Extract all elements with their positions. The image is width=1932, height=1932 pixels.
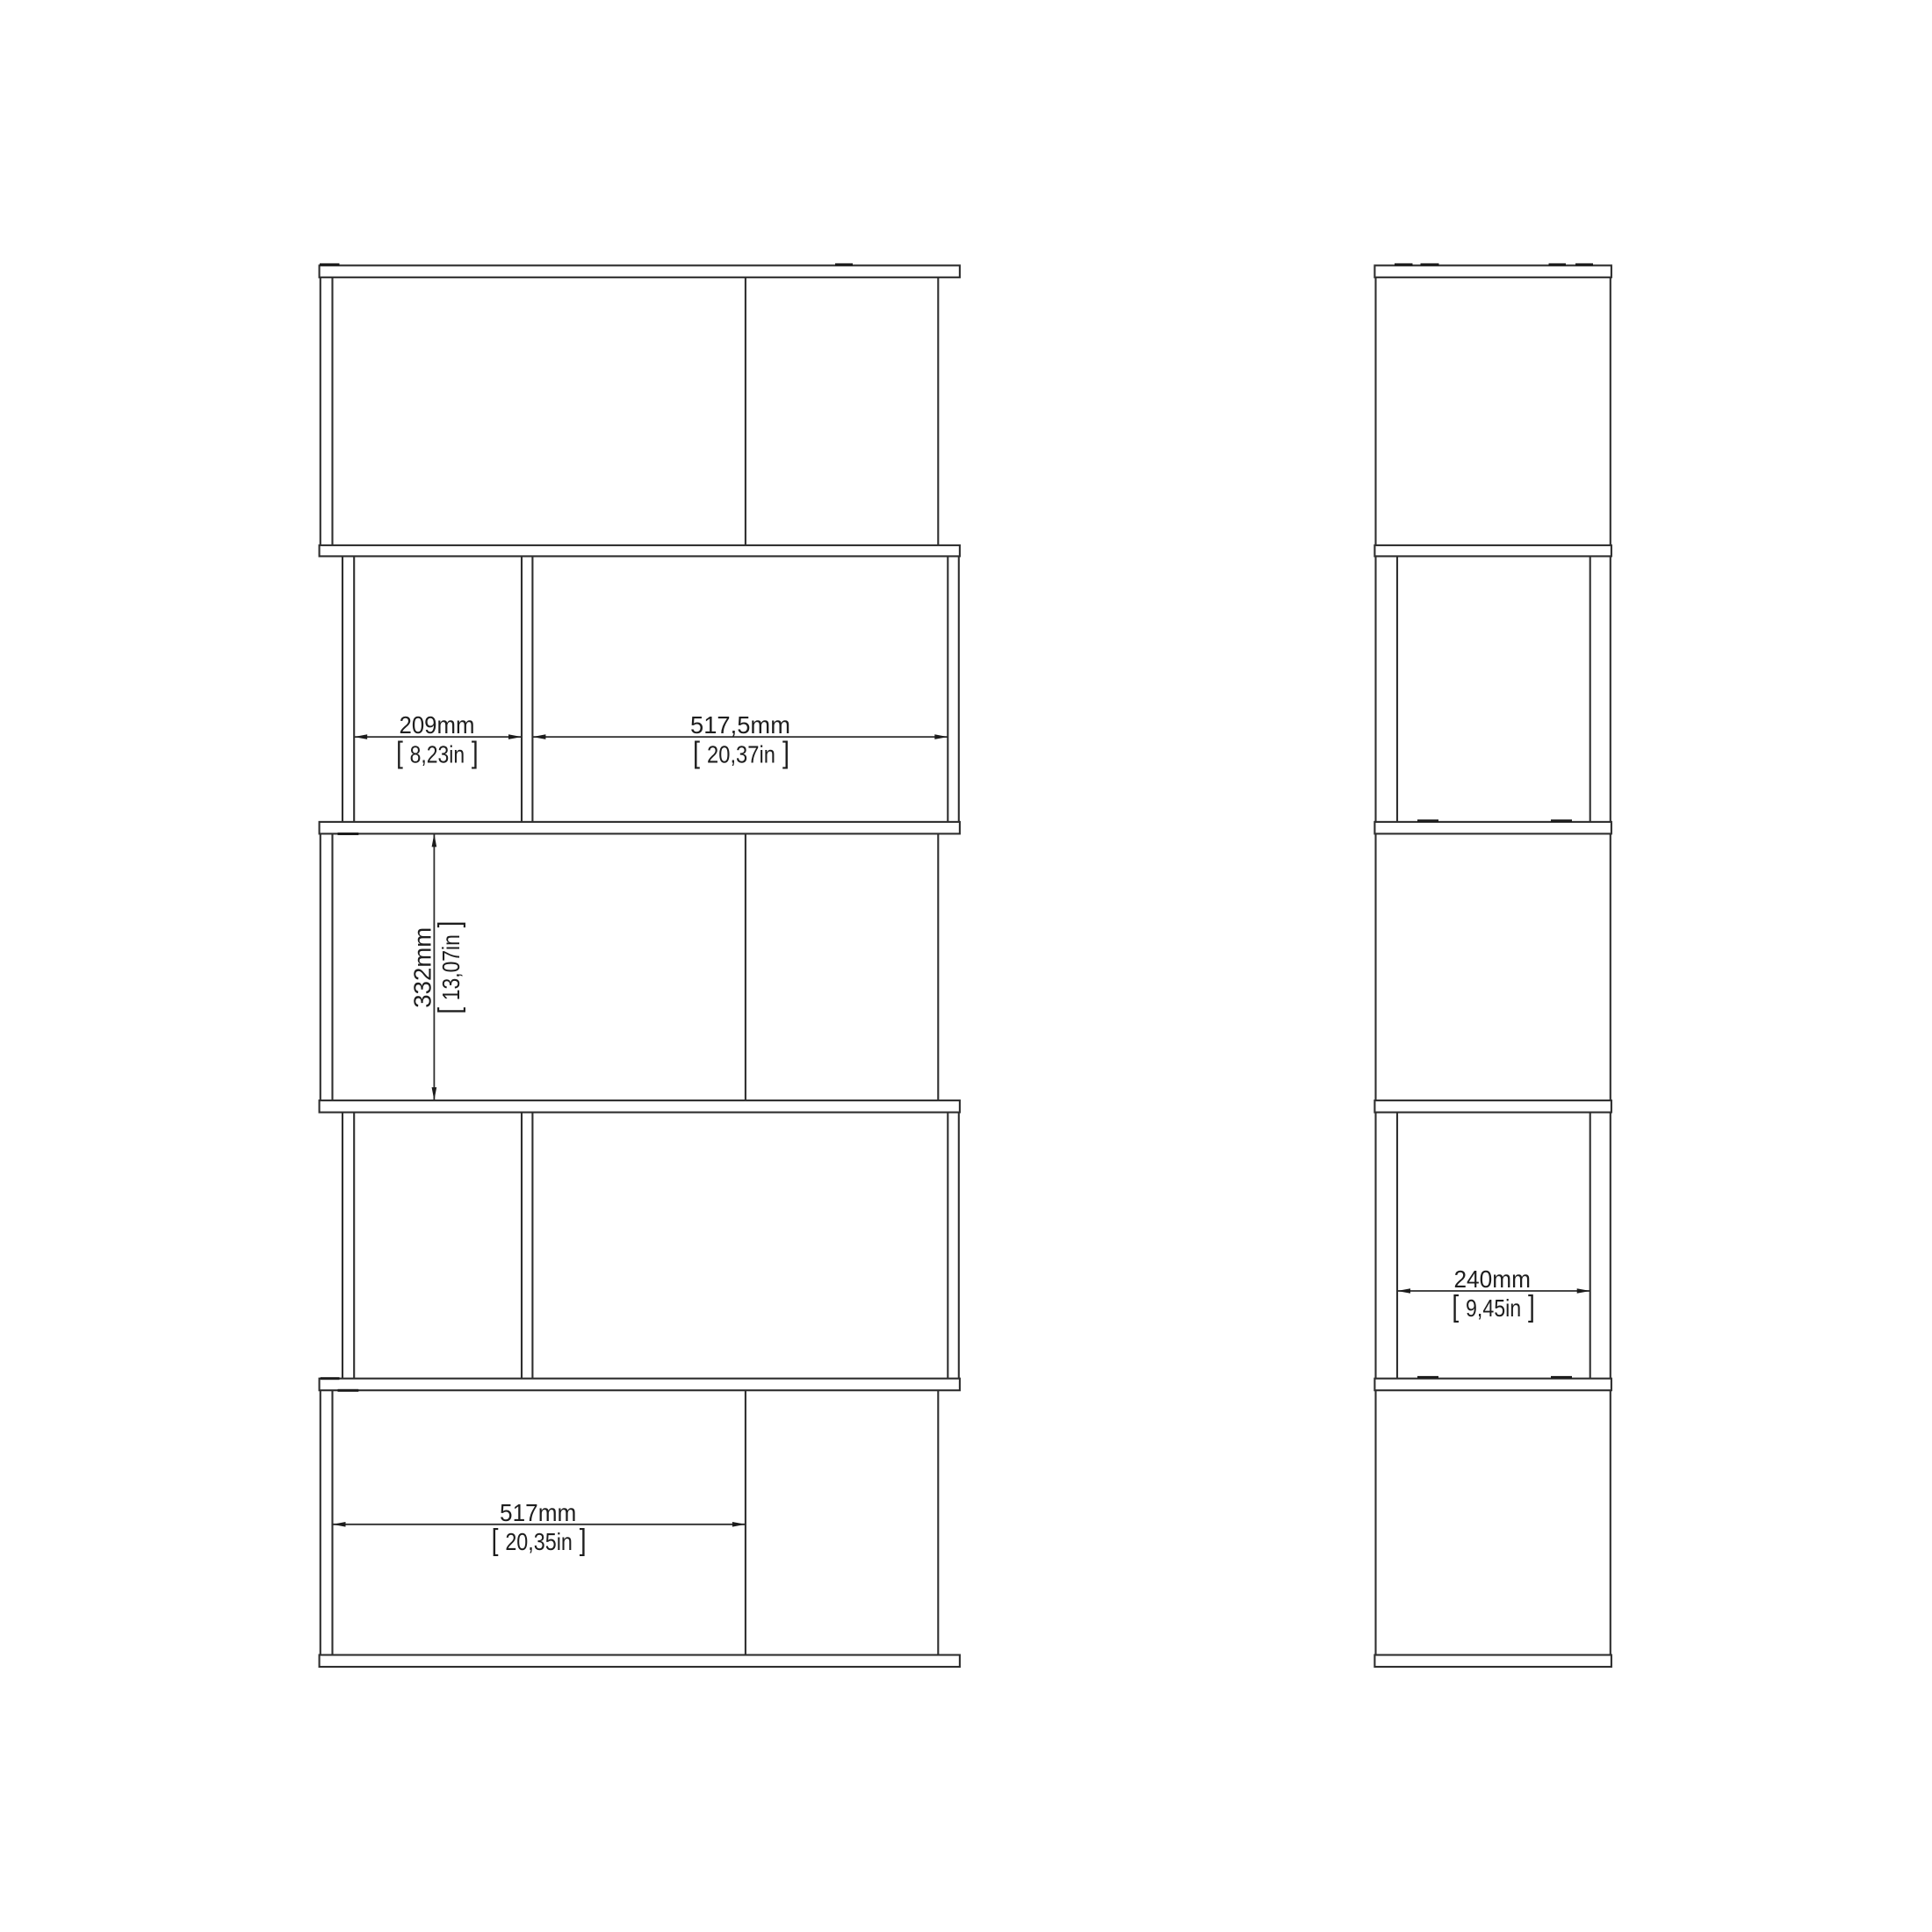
svg-text:517mm: 517mm (500, 1499, 576, 1526)
svg-text:[ 9,45in ]: [ 9,45in ] (1452, 1290, 1535, 1323)
svg-text:[ 8,23in ]: [ 8,23in ] (396, 736, 479, 769)
svg-text:[ 20,35in ]: [ 20,35in ] (492, 1524, 587, 1557)
svg-text:209mm: 209mm (400, 711, 475, 739)
svg-text:240mm: 240mm (1453, 1265, 1531, 1293)
svg-text:[ 13,07in ]: [ 13,07in ] (433, 921, 466, 1014)
svg-text:[ 20,37in ]: [ 20,37in ] (693, 736, 789, 769)
svg-text:517,5mm: 517,5mm (690, 711, 790, 739)
svg-text:332mm: 332mm (409, 927, 436, 1008)
